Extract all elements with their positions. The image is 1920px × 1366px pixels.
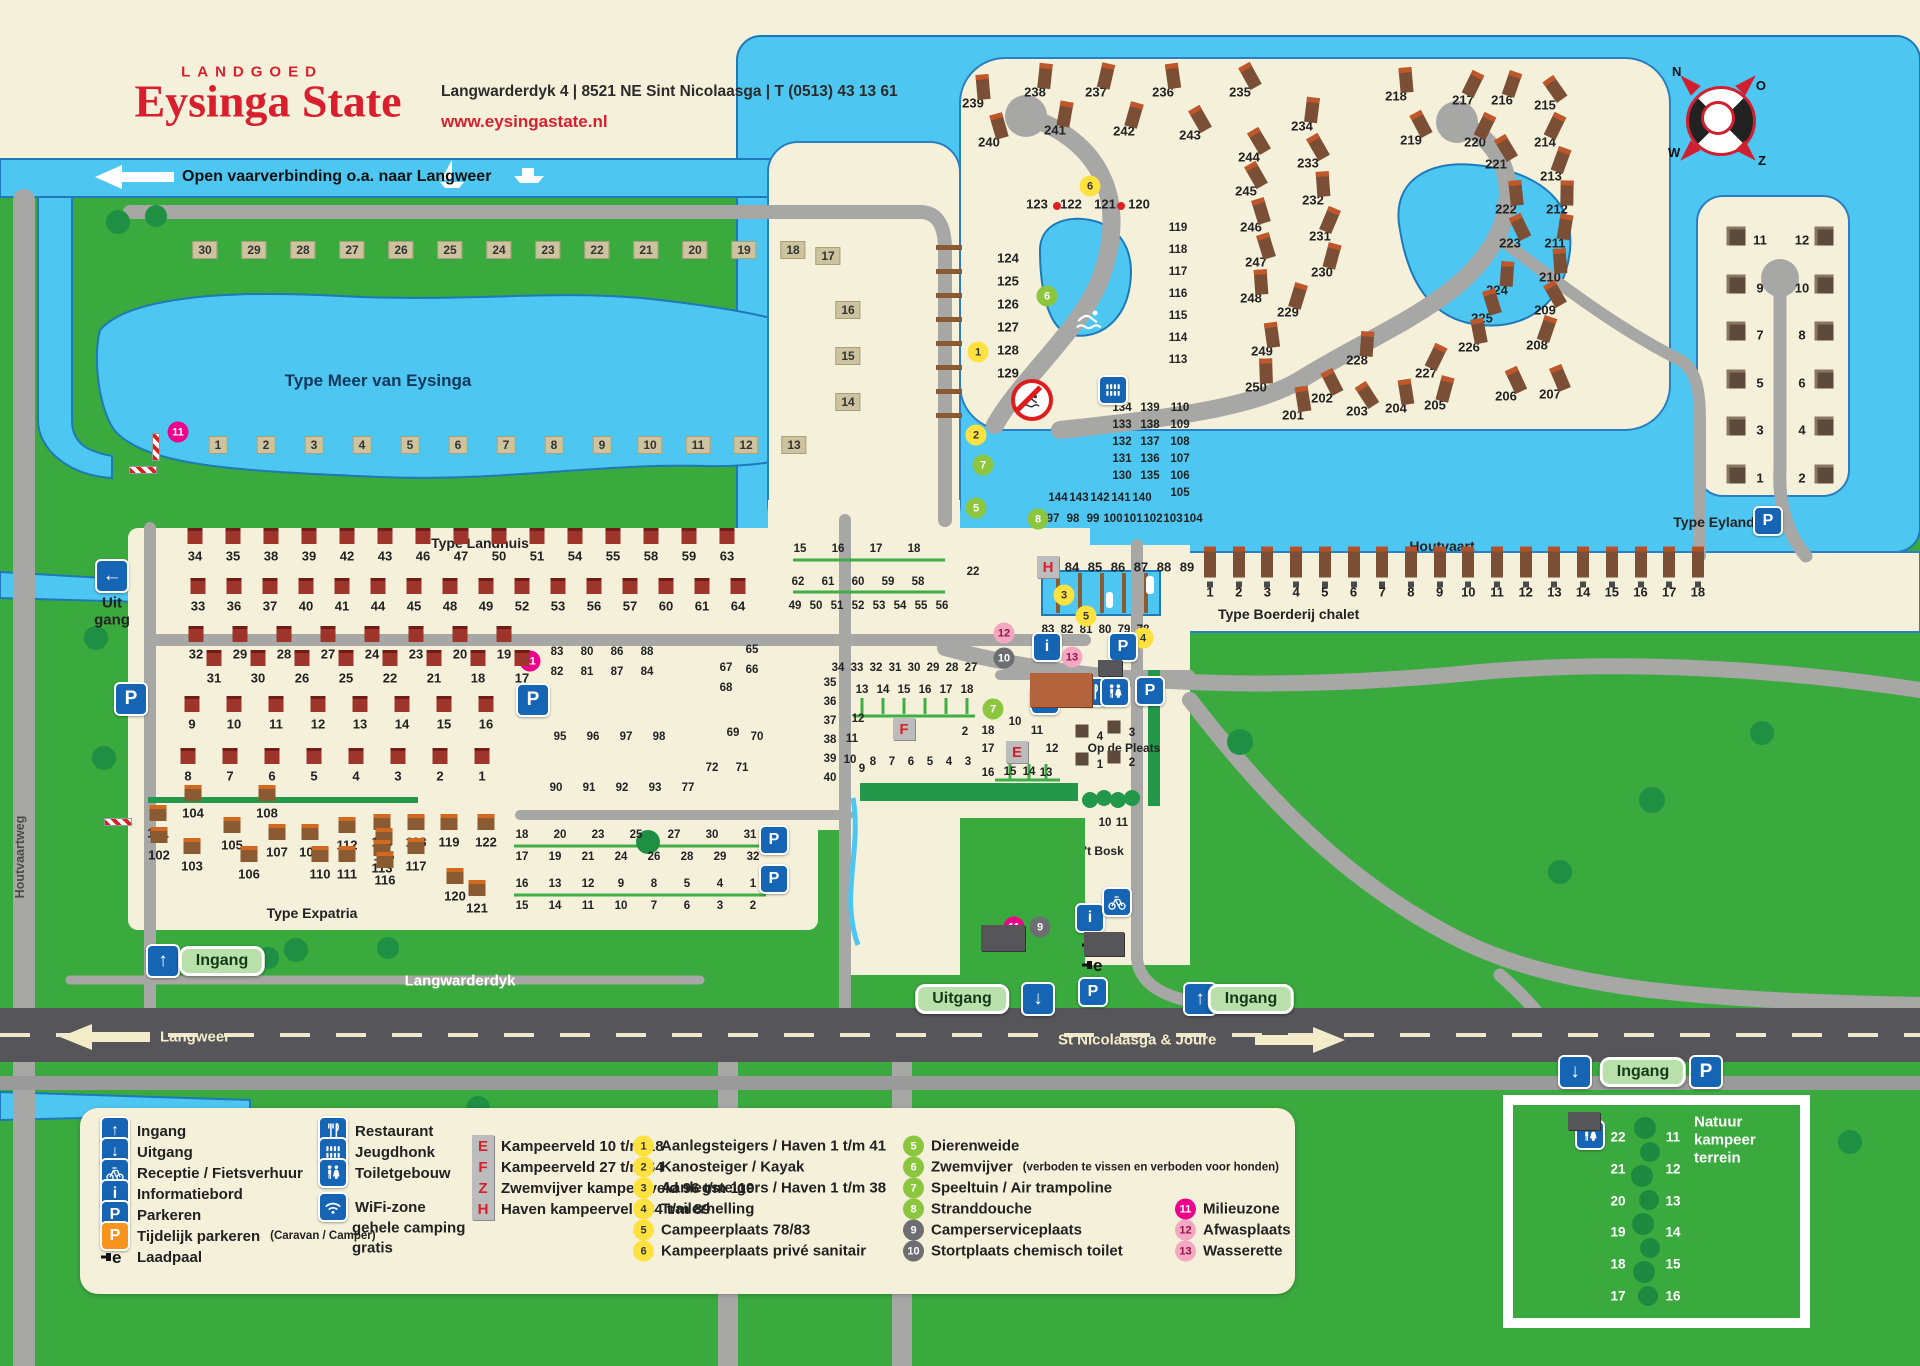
text: 6 <box>684 900 690 912</box>
num: 119 <box>439 835 460 850</box>
num: 8 <box>870 756 876 768</box>
house <box>1425 343 1448 371</box>
num: 62 <box>792 576 805 588</box>
house <box>1290 547 1302 578</box>
num: 67 <box>720 662 733 674</box>
text: Stranddouche <box>931 1201 1032 1218</box>
text: 14 <box>395 717 409 732</box>
house <box>1319 206 1341 234</box>
num: 25 <box>630 829 643 841</box>
text: Type Eyland <box>1673 514 1754 530</box>
num: 57 <box>623 599 637 614</box>
text: 221 <box>1485 157 1507 172</box>
num: 110 <box>1171 402 1190 414</box>
house <box>189 626 204 642</box>
text: 11 <box>1031 725 1043 737</box>
text: 15 <box>437 717 451 732</box>
text: 10 <box>1099 817 1112 829</box>
text: 83 <box>551 646 564 658</box>
text: 51 <box>831 600 844 612</box>
num: 13 <box>353 717 367 732</box>
text: 9 <box>188 717 195 732</box>
text: 92 <box>616 782 629 794</box>
text: 15 <box>1004 766 1017 778</box>
text: 34 <box>832 662 845 674</box>
numbox: 25 <box>437 241 462 259</box>
b-dot <box>1117 202 1125 210</box>
marker: P <box>759 825 789 855</box>
num: 114 <box>1169 332 1188 344</box>
num: 1 <box>478 769 485 784</box>
text: Aanlegsteigers / Haven 1 t/m 41 <box>661 1138 886 1155</box>
num: 10 <box>1795 280 1809 295</box>
text: 128 <box>997 343 1019 358</box>
lrow: 5Dierenweide <box>903 1136 1019 1157</box>
house <box>226 528 241 544</box>
num: 56 <box>936 600 949 612</box>
text: 4 <box>1097 731 1103 743</box>
num: 106 <box>1170 470 1189 482</box>
text: 118 <box>1169 244 1188 256</box>
num: 28 <box>277 647 291 662</box>
text: 10 <box>1795 280 1809 295</box>
num: 46 <box>416 549 430 564</box>
pill: Ingang <box>1600 1057 1686 1087</box>
text: 62 <box>792 576 805 588</box>
house <box>479 696 494 712</box>
text: 6 <box>1798 375 1805 390</box>
lbl: kampeer <box>1694 1132 1756 1149</box>
lbl: Uit <box>102 595 122 612</box>
text: 18 <box>1610 1257 1625 1272</box>
house <box>1398 379 1415 406</box>
text: 19 <box>731 241 756 259</box>
num: 89 <box>1180 560 1194 575</box>
text: 140 <box>1132 492 1151 504</box>
bar <box>129 466 157 474</box>
house <box>1727 369 1746 388</box>
num: 5 <box>684 878 690 890</box>
num: 88 <box>641 646 654 658</box>
house <box>277 626 292 642</box>
num: 16 <box>982 767 995 779</box>
lbl: Open vaarverbinding o.a. naar Langweer <box>182 168 491 186</box>
text: 41 <box>335 599 349 614</box>
house <box>551 578 566 594</box>
text: 215 <box>1534 98 1556 113</box>
house <box>321 626 336 642</box>
house <box>568 528 583 544</box>
num: 86 <box>611 646 624 658</box>
site: www.eysingastate.nl <box>441 112 608 132</box>
num: 2 <box>1129 757 1135 769</box>
house <box>1500 261 1515 287</box>
text: 17 <box>982 743 995 755</box>
num: 24 <box>615 851 628 863</box>
text: 90 <box>550 782 563 794</box>
text: 15 <box>516 900 529 912</box>
symbol-icon: P <box>759 864 789 894</box>
swim-icon <box>1022 390 1042 410</box>
num: 38 <box>264 549 278 564</box>
text: 203 <box>1346 404 1368 419</box>
num: 14 <box>549 900 562 912</box>
text: Type Boerderij chalet <box>1218 606 1359 622</box>
num: 2 <box>750 900 756 912</box>
text: gang <box>94 612 130 629</box>
text: Kanosteiger / Kayak <box>661 1159 804 1176</box>
num: 11 <box>582 900 594 912</box>
text: 87 <box>611 666 624 678</box>
house <box>1727 322 1746 341</box>
text: 13 <box>1665 1193 1680 1208</box>
house <box>453 626 468 642</box>
num: 101 <box>1123 513 1142 525</box>
num: 18 <box>516 829 529 841</box>
text: 233 <box>1297 156 1319 171</box>
num: 128 <box>997 343 1019 358</box>
text: Langweer <box>160 1029 230 1046</box>
num: 1 <box>1756 471 1763 486</box>
num: 83 <box>551 646 564 658</box>
num: 98 <box>653 731 666 743</box>
house <box>695 578 710 594</box>
num: 14 <box>395 717 409 732</box>
text: 12 <box>582 878 595 890</box>
text: 14 <box>1023 766 1036 778</box>
symbol-icon: P <box>1689 1055 1723 1089</box>
house <box>299 578 314 594</box>
text: 143 <box>1069 492 1088 504</box>
num: 27 <box>321 647 335 662</box>
num: 29 <box>233 647 247 662</box>
num: 26 <box>648 851 661 863</box>
text: 54 <box>894 600 907 612</box>
lrow: 7Speeltuin / Air trampoline <box>903 1178 1112 1199</box>
text: 5 <box>684 878 690 890</box>
house <box>408 838 425 854</box>
num: 11 <box>1753 233 1767 248</box>
text: Uitgang <box>915 984 1009 1014</box>
num: 133 <box>1112 419 1131 431</box>
lrow: 6Kampeerplaats privé sanitair <box>633 1241 866 1262</box>
text: 39 <box>824 753 837 765</box>
num: 122 <box>1060 197 1082 212</box>
num: 12 <box>1046 743 1059 755</box>
marker: 11 <box>168 422 189 443</box>
text: 21 <box>582 851 595 863</box>
text: 122 <box>475 835 497 850</box>
num: 6 <box>684 900 690 912</box>
house <box>188 528 203 544</box>
field-letter: H <box>472 1198 494 1220</box>
num: 33 <box>191 599 205 614</box>
text: 27 <box>339 241 364 259</box>
text: 5 <box>927 756 933 768</box>
house <box>1376 547 1388 578</box>
numbered-badge: 2 <box>633 1157 654 1178</box>
numbered-badge: 5 <box>903 1136 924 1157</box>
num: 59 <box>682 549 696 564</box>
house <box>1520 547 1532 578</box>
house <box>443 578 458 594</box>
house <box>207 650 222 666</box>
num: 10 <box>1099 817 1112 829</box>
house <box>1316 171 1331 197</box>
text: 25 <box>630 829 643 841</box>
house <box>731 578 746 594</box>
num: 15 <box>898 684 911 696</box>
text: 63 <box>720 549 734 564</box>
house <box>1360 331 1375 357</box>
text: 12 <box>733 436 758 454</box>
text: Campeerplaats 78/83 <box>661 1222 810 1239</box>
text: Ingang <box>179 946 265 976</box>
num: 72 <box>706 762 719 774</box>
bar <box>152 433 160 461</box>
house <box>447 868 464 884</box>
house <box>1097 62 1115 89</box>
text: 23 <box>535 241 560 259</box>
text: 104 <box>182 806 204 821</box>
num: 58 <box>912 576 925 588</box>
num: 19 <box>549 851 562 863</box>
num: 126 <box>997 297 1019 312</box>
text: 49 <box>479 599 493 614</box>
num: 18 <box>908 543 921 555</box>
text: 30 <box>706 829 719 841</box>
text: 9 <box>1756 280 1763 295</box>
num: 84 <box>641 666 654 678</box>
house <box>365 626 380 642</box>
text: Aanlegsteigers / Haven 1 t/m 38 <box>661 1180 886 1197</box>
num: 6 <box>268 769 275 784</box>
campground-map: N O W Z 30292827262524232221201918171615… <box>0 0 1920 1366</box>
text: 8 <box>1798 328 1805 343</box>
num: 10 <box>844 754 857 766</box>
num: 16 <box>479 717 493 732</box>
text: 58 <box>912 576 925 588</box>
num: 245 <box>1235 184 1257 199</box>
num: 17 <box>516 851 529 863</box>
house <box>1663 547 1675 578</box>
marker: 2 <box>966 425 987 446</box>
numbered-badge: 9 <box>1030 917 1051 938</box>
symbol-icon: i <box>1032 632 1062 662</box>
num: 33 <box>851 662 864 674</box>
text: Langwarderdyk 4 | 8521 NE Sint Nicolaasg… <box>441 83 898 101</box>
bld <box>1098 660 1122 676</box>
text: 32 <box>747 851 760 863</box>
text: 57 <box>623 599 637 614</box>
house <box>227 696 242 712</box>
house <box>339 650 354 666</box>
field-letter: F <box>893 718 915 740</box>
numbered-badge: 6 <box>633 1241 654 1262</box>
num: 23 <box>592 829 605 841</box>
house <box>682 528 697 544</box>
house <box>1815 465 1834 484</box>
text: 37 <box>824 715 837 727</box>
text: 54 <box>568 549 582 564</box>
num: 88 <box>1157 560 1171 575</box>
numbox: 7 <box>497 436 516 454</box>
house <box>1815 417 1834 436</box>
mk: F <box>893 718 915 740</box>
text-suffix: (verboden te vissen en verboden voor hon… <box>1023 1161 1279 1173</box>
num: 6 <box>1798 375 1805 390</box>
text: 139 <box>1140 402 1159 414</box>
text: 34 <box>188 549 202 564</box>
text: 3 <box>717 900 723 912</box>
text: 71 <box>736 762 749 774</box>
text: Natuur <box>1694 1114 1742 1131</box>
text: 38 <box>824 734 837 746</box>
num: 7 <box>1756 328 1763 343</box>
lbl: Langweer <box>160 1029 230 1046</box>
svg-text:e: e <box>1093 956 1102 975</box>
text: 138 <box>1140 419 1159 431</box>
num: 14 <box>877 684 890 696</box>
num: 8 <box>184 769 191 784</box>
symbol-icon: P <box>1108 632 1138 662</box>
num: 32 <box>747 851 760 863</box>
house <box>269 824 286 840</box>
marker: 10 <box>994 648 1015 669</box>
marker: 13 <box>1062 647 1083 668</box>
marker: 5 <box>966 498 987 519</box>
numbered-badge: 13 <box>1062 647 1083 668</box>
num: 4 <box>717 878 723 890</box>
numbered-badge: 6 <box>1037 286 1058 307</box>
text: 1 <box>750 878 756 890</box>
text: Laadpaal <box>137 1249 202 1266</box>
num: 9 <box>188 717 195 732</box>
house <box>1553 248 1568 274</box>
marker: 6 <box>1037 286 1058 307</box>
text: 16 <box>919 684 932 696</box>
text: 119 <box>439 835 460 850</box>
num: 203 <box>1346 404 1368 419</box>
numbered-badge: 5 <box>633 1220 654 1241</box>
text: 11 <box>1753 233 1767 248</box>
text: 30 <box>251 671 265 686</box>
num: 82 <box>1061 624 1074 636</box>
house <box>335 578 350 594</box>
house <box>241 846 258 862</box>
numbered-badge: 2 <box>966 425 987 446</box>
num: 10 <box>227 717 241 732</box>
house <box>1108 721 1121 734</box>
marker: 1 <box>968 342 989 363</box>
num: 37 <box>824 715 837 727</box>
text: Milieuzone <box>1203 1201 1280 1218</box>
num: 16 <box>832 543 845 555</box>
num: 92 <box>616 782 629 794</box>
num: 9 <box>1756 280 1763 295</box>
num: 19 <box>1610 1225 1625 1240</box>
num: 233 <box>1297 156 1319 171</box>
text: 4 <box>1798 423 1805 438</box>
text: 17 <box>1610 1289 1625 1304</box>
text: 2 <box>1798 471 1805 486</box>
lbl: gratis <box>352 1240 393 1257</box>
numbered-badge: 12 <box>994 623 1015 644</box>
text: 88 <box>641 646 654 658</box>
text: 40 <box>824 772 837 784</box>
text: 21 <box>427 671 441 686</box>
b-dot <box>1053 202 1061 210</box>
lrow: 2Kanosteiger / Kayak <box>633 1157 804 1178</box>
num: 117 <box>406 859 427 874</box>
num: 139 <box>1140 402 1159 414</box>
marker: ↑ <box>146 944 180 978</box>
num: 11 <box>846 733 858 745</box>
text: 2 <box>257 436 276 454</box>
symbol-icon: P <box>759 825 789 855</box>
text: 120 <box>444 889 466 904</box>
text: 48 <box>443 599 457 614</box>
wifi-icon <box>318 1192 348 1222</box>
text: 22 <box>383 671 397 686</box>
num: 22 <box>383 671 397 686</box>
text: 6 <box>268 769 275 784</box>
text: 14 <box>835 393 860 411</box>
num: 113 <box>1169 354 1188 366</box>
house <box>427 650 442 666</box>
house <box>1548 547 1560 578</box>
num: 127 <box>997 320 1019 335</box>
num: 6 <box>908 756 914 768</box>
lbl: Type Boerderij chalet <box>1218 606 1359 622</box>
text: 55 <box>915 600 928 612</box>
text: 11 <box>846 733 858 745</box>
text: 46 <box>416 549 430 564</box>
num: 54 <box>568 549 582 564</box>
num: 87 <box>611 666 624 678</box>
text: 29 <box>241 241 266 259</box>
house <box>437 696 452 712</box>
text: 23 <box>409 647 423 662</box>
marker: P <box>759 864 789 894</box>
house <box>1348 547 1360 578</box>
num: 136 <box>1140 453 1159 465</box>
text: Type Landhuis <box>431 535 529 551</box>
num: 21 <box>427 671 441 686</box>
marker: i <box>1075 903 1105 933</box>
house <box>659 578 674 594</box>
text: 243 <box>1179 128 1201 143</box>
num: 108 <box>1170 436 1189 448</box>
num: 215 <box>1534 98 1556 113</box>
symbol-icon: P <box>1135 676 1165 706</box>
marker <box>1098 375 1128 405</box>
house <box>353 696 368 712</box>
num: 118 <box>1169 244 1188 256</box>
numbox: 2 <box>257 436 276 454</box>
num: 2 <box>1798 471 1805 486</box>
house <box>1537 315 1557 343</box>
text: 82 <box>551 666 564 678</box>
num: 40 <box>824 772 837 784</box>
text: 13 <box>1040 767 1053 779</box>
plug-icon: e <box>1081 954 1111 976</box>
house <box>378 528 393 544</box>
numbered-badge: 7 <box>983 699 1004 720</box>
text: 7 <box>651 900 657 912</box>
num: 27 <box>668 829 681 841</box>
symbol-icon: ↓ <box>1021 982 1055 1016</box>
